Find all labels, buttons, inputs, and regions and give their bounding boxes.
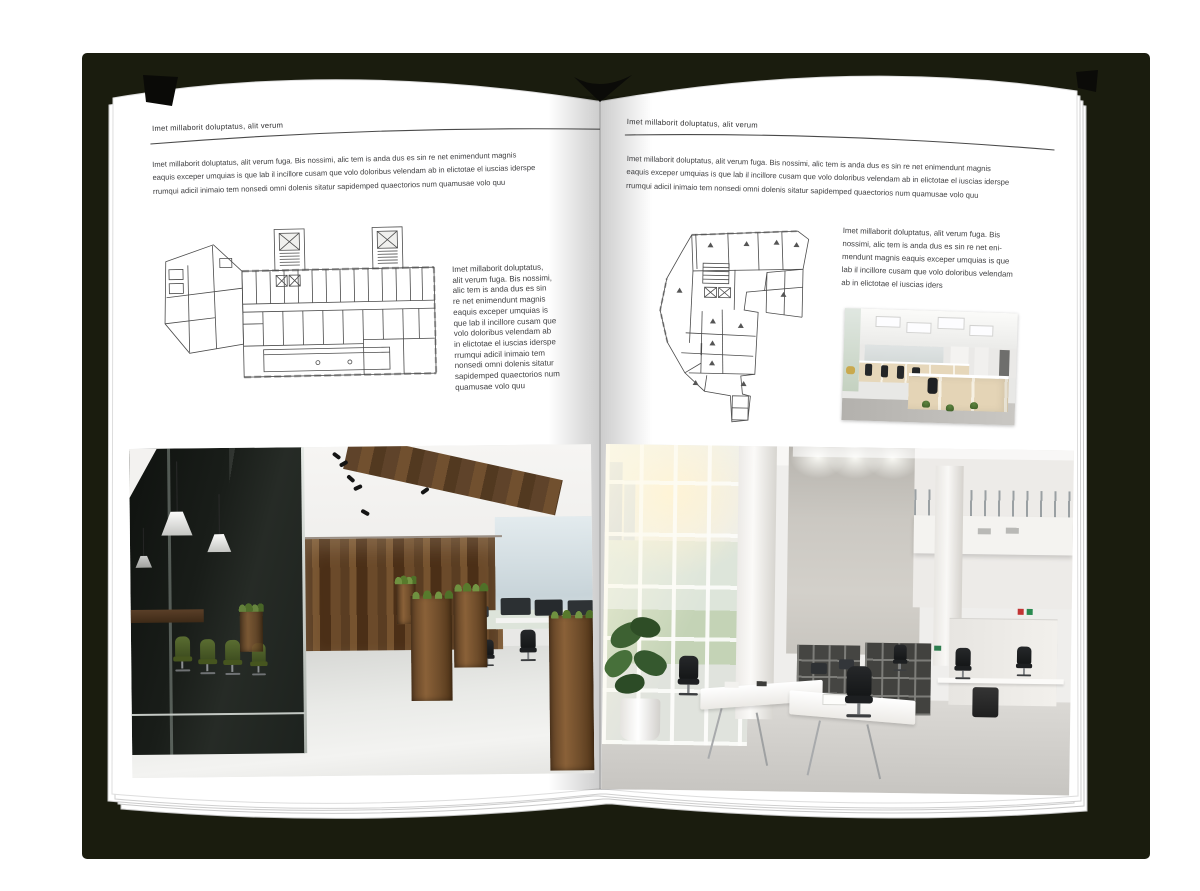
decor-shape: [143, 528, 144, 556]
decor-shape: [857, 703, 860, 714]
photo3-chair: [881, 365, 888, 377]
photo1-pendant-lamp: [159, 461, 194, 535]
decor-shape: [264, 347, 390, 372]
grass: [546, 606, 594, 619]
decor-shape: [658, 228, 809, 423]
decor-shape: [689, 373, 755, 374]
photo2-vent: [977, 529, 990, 535]
photo2-plant-pot: [620, 698, 661, 741]
decor-shape: [659, 278, 668, 342]
decor-shape: [169, 283, 183, 293]
decor-shape: [686, 333, 756, 336]
photo2-office-chair: [678, 656, 703, 697]
decor-shape: [256, 271, 257, 304]
decor-shape: [679, 656, 699, 680]
decor-shape: [734, 270, 735, 310]
decor-shape: [212, 246, 216, 349]
decor-shape: [396, 268, 397, 301]
photo3-plant: [970, 402, 978, 409]
decor-shape: [744, 241, 750, 246]
decor-shape: [257, 666, 259, 672]
photo1-ceiling-corner: [129, 449, 157, 498]
decor-shape: [188, 265, 190, 352]
photo1-meeting-table: [131, 609, 204, 624]
decor-shape: [383, 309, 384, 339]
decor-shape: [160, 511, 194, 535]
decor-shape: [1017, 646, 1032, 664]
decor-shape: [845, 695, 873, 703]
decor-shape: [312, 270, 313, 303]
photo3-column: [974, 347, 989, 379]
photo-office-bright-loft: [601, 444, 1074, 796]
decor-shape: [225, 640, 240, 662]
decor-shape: [323, 311, 324, 345]
decor-shape: [363, 310, 364, 375]
decor-shape: [354, 269, 355, 302]
decor-shape: [419, 308, 420, 338]
decor-shape: [422, 267, 423, 300]
photo3-light-panel: [938, 317, 965, 330]
decor-shape: [781, 232, 784, 270]
decor-shape: [252, 673, 266, 675]
decor-shape: [218, 494, 219, 534]
decor-shape: [784, 271, 785, 315]
decor-shape: [303, 311, 304, 345]
decor-shape: [206, 664, 208, 671]
decor-shape: [774, 240, 780, 245]
cover-curl-shadow-left: [143, 75, 178, 106]
photo2-office-chair-foreground: [845, 666, 877, 719]
decor-shape: [403, 339, 404, 374]
decor-shape: [685, 363, 701, 373]
decor-shape: [955, 678, 970, 680]
floor-plan-right: [644, 222, 838, 426]
decor-shape: [175, 636, 190, 658]
decor-shape: [243, 308, 435, 312]
decor-shape: [176, 462, 178, 512]
decor-shape: [703, 279, 729, 280]
decor-shape: [200, 672, 215, 674]
photo3-plant: [922, 400, 930, 407]
photo3-light-panel: [969, 325, 994, 337]
decor-shape: [847, 666, 872, 697]
decor-shape: [283, 311, 284, 345]
decor-shape: [677, 288, 683, 293]
photo2-plant: [602, 616, 679, 748]
photo1-pendant-lamp: [206, 494, 233, 552]
grass: [238, 600, 264, 612]
grass: [452, 579, 488, 591]
decor-shape: [165, 318, 215, 324]
photo2-bin: [972, 687, 998, 717]
photo2-vent: [1006, 527, 1019, 533]
decor-shape: [695, 234, 698, 269]
decor-shape: [175, 669, 190, 671]
decor-shape: [343, 310, 344, 344]
decor-shape: [893, 669, 906, 671]
photo2-safety-sign-red: [1018, 608, 1024, 614]
decor-shape: [232, 665, 234, 672]
decor-shape: [200, 639, 215, 661]
decor-shape: [410, 268, 411, 301]
decor-shape: [765, 286, 803, 291]
decor-shape: [703, 263, 729, 284]
decor-shape: [710, 318, 716, 323]
grass: [395, 572, 417, 584]
photo2-office-chair: [954, 648, 973, 681]
decor-shape: [263, 312, 264, 346]
cover-curl-shadow-right: [1076, 70, 1098, 92]
decor-shape: [520, 630, 535, 649]
decor-shape: [521, 659, 536, 661]
photo2-office-chair: [1016, 646, 1034, 677]
photo1-green-chair: [198, 639, 220, 675]
photo1-green-chair: [173, 636, 195, 672]
photo3-light-panel: [907, 322, 932, 334]
decor-shape: [242, 267, 436, 377]
decor-shape: [181, 661, 183, 668]
decor-shape: [382, 268, 383, 301]
decor-shape: [679, 693, 698, 696]
decor-shape: [340, 269, 341, 302]
decor-shape: [721, 310, 724, 374]
decor-shape: [363, 338, 435, 340]
decor-shape: [348, 360, 352, 364]
photo1-planter: [454, 588, 487, 667]
decor-shape: [703, 275, 729, 276]
decor-shape: [658, 228, 809, 423]
photo2-column-left: [736, 446, 777, 719]
photo1-pendant-lamp-far: [134, 528, 152, 568]
photo3-chair: [865, 364, 872, 376]
decor-shape: [1023, 668, 1025, 674]
decor-shape: [703, 271, 729, 272]
decor-shape: [206, 534, 232, 552]
decor-shape: [264, 352, 390, 355]
photo3-chair-near: [927, 378, 937, 394]
photo2-safety-sign-green: [1026, 609, 1032, 615]
decor-shape: [316, 361, 320, 365]
photo2-laptop: [757, 681, 767, 686]
decor-shape: [738, 323, 744, 328]
decor-shape: [689, 271, 693, 343]
decor-shape: [701, 311, 702, 373]
grass: [407, 586, 454, 598]
decor-shape: [794, 242, 800, 247]
photo3-chair: [896, 366, 903, 379]
decor-shape: [846, 714, 871, 717]
floor-plan-left: [155, 220, 451, 414]
photo2-exit-sign: [934, 645, 941, 650]
decor-shape: [368, 269, 369, 302]
decor-shape: [270, 271, 271, 304]
photo2-monitor: [811, 663, 827, 674]
photo2-concrete-wall: [786, 447, 922, 656]
decor-shape: [709, 360, 715, 365]
decor-shape: [709, 340, 715, 345]
decor-shape: [780, 292, 786, 297]
decor-shape: [163, 226, 436, 379]
photo1-monitor: [500, 598, 530, 615]
decor-shape: [757, 232, 760, 270]
decor-shape: [166, 288, 242, 298]
photo1-office-chair: [519, 630, 538, 662]
left-side-text: Imet millaborit doluptatus, alit verum f…: [452, 262, 579, 394]
decor-shape: [326, 269, 327, 302]
brochure-mockup-scene: Imet millaborit doluptatus, alit verum I…: [0, 0, 1200, 891]
decor-shape: [243, 300, 435, 304]
photo1-planter: [410, 595, 453, 701]
decor-shape: [681, 353, 753, 357]
decor-shape: [955, 648, 970, 667]
decor-shape: [169, 269, 183, 279]
photo-office-dark-wood: [129, 444, 594, 778]
decor-shape: [135, 556, 153, 568]
decor-shape: [802, 269, 803, 317]
decor-shape: [403, 309, 404, 339]
decor-shape: [687, 684, 690, 692]
right-side-text: Imet millaborit doluptatus, alit verum f…: [841, 224, 1038, 295]
photo2-office-chair: [893, 645, 909, 672]
photo1-planter-inside: [239, 609, 263, 652]
photo-office-cubicles-small: [841, 308, 1017, 425]
photo1-planter-large: [549, 615, 594, 770]
photo2-drawing-sheet: [822, 694, 846, 705]
photo3-light-panel: [876, 316, 901, 328]
decor-shape: [704, 375, 706, 391]
photo3-plant: [946, 404, 954, 411]
photo2-papers: [724, 682, 738, 688]
decor-shape: [894, 645, 907, 661]
decor-shape: [226, 673, 241, 675]
decor-shape: [703, 267, 729, 268]
decor-shape: [707, 242, 713, 247]
decor-shape: [1017, 674, 1031, 676]
